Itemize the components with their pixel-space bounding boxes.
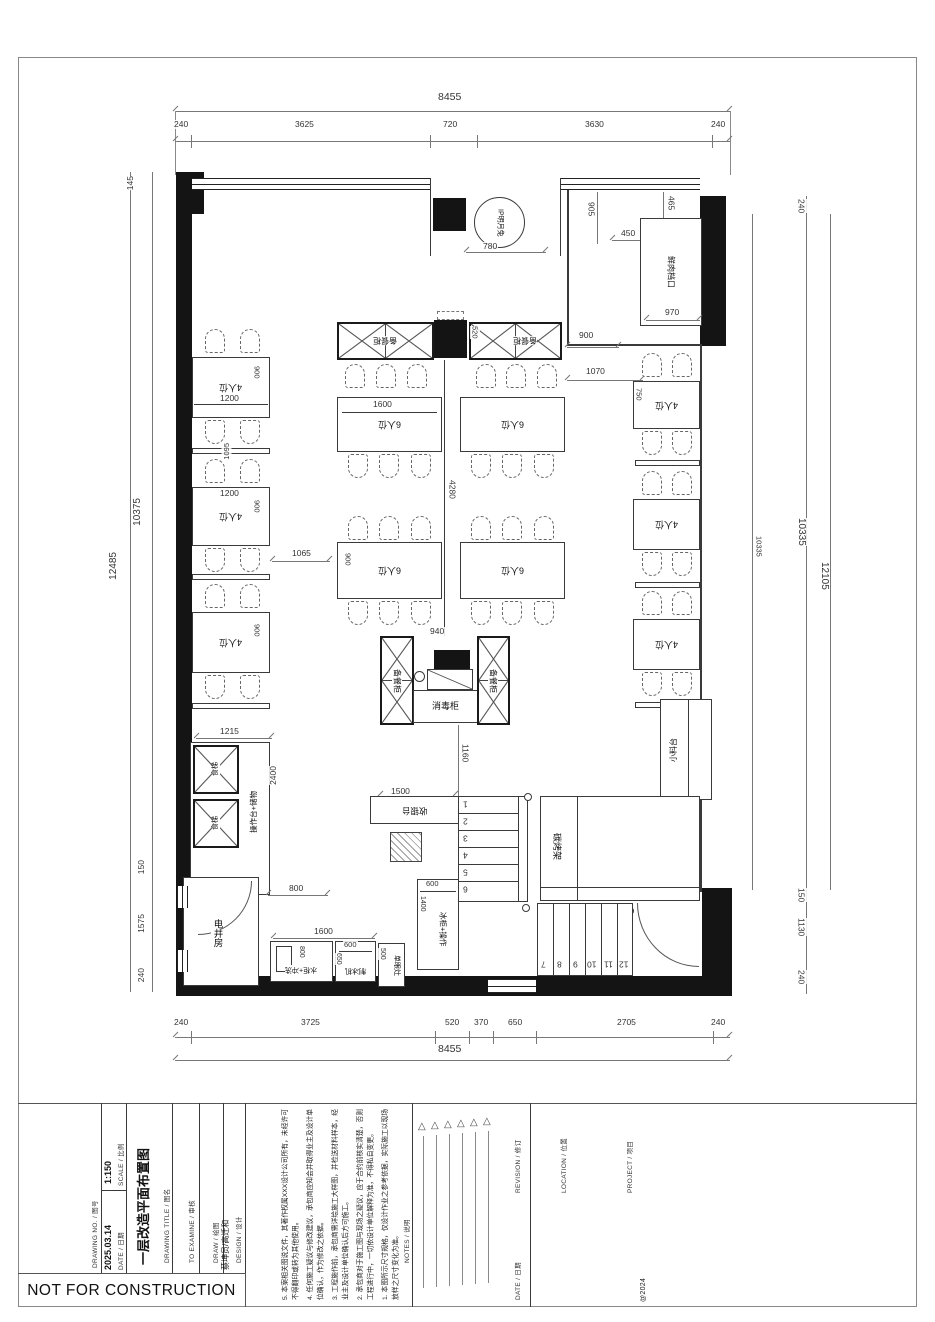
vestibule-wall [430, 178, 431, 256]
meat-room-wall [567, 344, 702, 346]
dim-line [567, 380, 643, 381]
chair-row [197, 582, 267, 610]
stair-number: 4 [462, 851, 469, 860]
dim-465: 465 [666, 196, 677, 210]
chair-row [637, 550, 697, 578]
stair-number: 10 [586, 960, 597, 969]
chair-icon [672, 552, 692, 576]
chair-row [465, 514, 560, 542]
dim-970: 970 [664, 308, 680, 317]
dim-left-1575: 1575 [136, 914, 147, 933]
cashier-desk: 收银台 [370, 796, 459, 824]
tick [713, 1031, 714, 1044]
revision-triangle-icon: △ [470, 1118, 478, 1128]
notes-label: NOTES / 说明 [401, 1108, 411, 1263]
tb-line [412, 1103, 413, 1307]
chair-icon [240, 584, 260, 608]
dim-1160: 1160 [460, 744, 471, 762]
chair-icon [407, 364, 427, 388]
prep-cabinet-label: 备餐柜 [488, 669, 497, 693]
chair-icon [471, 601, 491, 625]
chair-icon [502, 454, 522, 478]
dim-bottom-4: 650 [507, 1018, 523, 1027]
dim-line [196, 738, 272, 739]
chair-row [342, 599, 437, 627]
service-ledge [635, 582, 700, 588]
chair-icon [411, 601, 431, 625]
meat-room-wall [567, 190, 569, 346]
table-6p: 6人位 [460, 542, 565, 599]
revision-line [475, 1132, 476, 1284]
spice-station-label: 小料台 [669, 738, 678, 762]
dim-900: 900 [252, 366, 262, 379]
dim-top-3: 3630 [584, 120, 605, 129]
dim-right-150: 150 [796, 888, 807, 902]
stair-number: 11 [603, 960, 614, 969]
dim-4280: 4280 [447, 480, 458, 499]
tick [191, 135, 192, 148]
dim-600: 600 [343, 941, 358, 949]
dim-line [646, 320, 700, 321]
column [434, 320, 467, 358]
tick [712, 135, 713, 148]
ice-maker-label: 制冰机 [345, 966, 366, 974]
chair-icon [506, 364, 526, 388]
dim-line [597, 192, 598, 244]
dim-bottom-0: 240 [173, 1018, 189, 1027]
table-4p: 4人位 [192, 612, 270, 673]
dim-line [175, 141, 730, 142]
stair-tread [569, 903, 570, 976]
meat-counter-label: 鲜肉档口 [666, 256, 675, 288]
draw-label: DRAW / 绘图 [210, 1108, 220, 1263]
chair-icon [205, 329, 225, 353]
chair-icon [240, 420, 260, 444]
dim-left-145: 145 [125, 176, 136, 190]
chair-icon [205, 548, 225, 572]
stair-number: 12 [618, 960, 629, 969]
chair-icon [672, 591, 692, 615]
chair-icon [672, 353, 692, 377]
dim-1200: 1200 [219, 489, 240, 498]
tick [191, 1031, 192, 1044]
prep-cabinet-label: 备餐柜 [392, 669, 401, 693]
note-item: 3. 工程施作前，承包商需详绘施工大样图，并检送材料样本，经业主及设计单位确认后… [331, 1108, 352, 1300]
drawing-title-value: 一层改造平面布置图 [133, 1115, 152, 1265]
dim-line [175, 1037, 730, 1038]
chair-icon [379, 516, 399, 540]
column [433, 198, 466, 231]
dim-right-1130: 1130 [796, 918, 807, 936]
dim-line [420, 891, 456, 892]
single-stove-label: 单眼灶 [392, 955, 400, 976]
service-ledge [635, 460, 700, 466]
window-top-right [560, 178, 700, 190]
dim-line [152, 172, 153, 992]
dim-bottom-6: 240 [710, 1018, 726, 1027]
dim-450: 450 [620, 229, 636, 238]
dim-line [175, 111, 730, 112]
table-4p-label: 4人位 [655, 519, 678, 529]
design-value: 蔡坤员/高迁和 [220, 1155, 231, 1270]
revision-date-label: DATE / 日期 [512, 1240, 522, 1300]
dim-line [339, 951, 372, 952]
not-for-construction-stamp: NOT FOR CONSTRUCTION [18, 1273, 246, 1307]
dim-bottom-total: 8455 [437, 1044, 462, 1055]
grill-room-label: 碳烤架 [552, 833, 562, 860]
chair-icon [537, 364, 557, 388]
ip-mascot-label: IP明月兔 [495, 209, 503, 237]
chair-icon [476, 364, 496, 388]
note-item: 2. 承包商对于施工图与现场之疑议，应于合约前核实清楚，否则工程进行中，一切依设… [356, 1108, 377, 1300]
dim-line [130, 172, 131, 992]
cashier-label: 收银台 [402, 805, 428, 815]
dim-750: 750 [634, 388, 644, 401]
chair-icon [205, 420, 225, 444]
project-label: PROJECT / 项目 [624, 1108, 634, 1193]
dim-1500: 1500 [390, 787, 411, 796]
stair-number: 2 [462, 817, 469, 826]
dim-1215: 1215 [219, 727, 240, 736]
design-label: DESIGN / 设计 [233, 1108, 243, 1263]
chair-icon [642, 672, 662, 696]
chair-row [637, 351, 697, 379]
tb-line [101, 1103, 102, 1273]
window-top-left [192, 178, 430, 190]
service-ledge [192, 574, 270, 580]
tick [435, 1031, 436, 1044]
dim-line [567, 347, 619, 348]
spice-divider [688, 699, 689, 800]
chair-icon [411, 454, 431, 478]
revision-label: REVISION / 修订 [512, 1108, 522, 1193]
service-ledge [192, 703, 270, 709]
freezer-worktop-label: 冰柜+操作 [438, 912, 447, 946]
side-table [390, 832, 422, 862]
chair-icon [205, 584, 225, 608]
dim-10335-inner: 10335 [754, 536, 764, 557]
dim-left-150: 150 [136, 860, 147, 874]
chair-row [637, 429, 697, 457]
chair-icon [672, 672, 692, 696]
dim-top-1: 3625 [294, 120, 315, 129]
stair-number: 7 [540, 960, 547, 969]
dim-line [458, 725, 459, 797]
stair-tread [458, 881, 518, 882]
tb-line [172, 1103, 173, 1273]
stair-number: 5 [462, 868, 469, 877]
tb-line [530, 1103, 531, 1307]
stair-tread [458, 813, 518, 814]
dim-900: 900 [578, 331, 594, 340]
stair-tread [601, 903, 602, 976]
dim-top-2: 720 [442, 120, 458, 129]
dim-right-240b: 240 [796, 970, 807, 984]
dim-bottom-3: 370 [473, 1018, 489, 1027]
dim-1200: 1200 [219, 394, 240, 403]
tick [477, 135, 478, 148]
dim-line [830, 214, 831, 890]
revision-triangle-icon: △ [483, 1117, 491, 1127]
dim-line [268, 895, 328, 896]
chair-row [197, 418, 267, 446]
table-4p: 4人位 [633, 619, 700, 670]
chair-icon [502, 516, 522, 540]
table-4p-label: 4人位 [219, 637, 242, 647]
tick [430, 135, 431, 148]
chair-row [339, 362, 432, 390]
notes-block: 1. 本图所示尺寸规格，仅设计作业之参考依据，实际施工以现场放样之尺寸变化为准。… [250, 1108, 402, 1302]
dim-1600: 1600 [313, 927, 334, 936]
wall-hatch [177, 886, 188, 908]
revision-line [449, 1134, 450, 1286]
grill-divider [577, 796, 578, 901]
stair-number: 9 [572, 960, 579, 969]
chair-row [465, 452, 560, 480]
project-image-placeholder [636, 1105, 915, 1305]
tray-rack [427, 669, 473, 690]
to-examine-label: TO EXAMINE / 审核 [186, 1108, 196, 1263]
revision-line [423, 1136, 424, 1288]
revision-triangle-icon: △ [418, 1122, 426, 1132]
sink-station-label: 水柜+冲洗 [285, 965, 317, 973]
dim-bottom-5: 2705 [616, 1018, 637, 1027]
date-value: 2025.03.14 [103, 1198, 113, 1270]
revision-line [436, 1135, 437, 1287]
chair-row [637, 589, 697, 617]
column-dashed-cap [437, 311, 464, 320]
chair-icon [642, 552, 662, 576]
tick [469, 1031, 470, 1044]
chair-icon [348, 516, 368, 540]
table-4p-label: 4人位 [219, 382, 242, 392]
dim-bottom-1: 3725 [300, 1018, 321, 1027]
stool [414, 671, 425, 682]
drawing-title-label: DRAWING TITLE / 图名 [161, 1108, 171, 1263]
chair-row [197, 457, 267, 485]
table-6p: 6人位 [460, 397, 565, 452]
dim-line [273, 938, 375, 939]
revision-line [462, 1133, 463, 1285]
table-4p-label: 4人位 [219, 511, 242, 521]
chair-icon [642, 353, 662, 377]
food-lift-label: 食梯 [212, 762, 220, 776]
dim-top-0: 240 [173, 120, 189, 129]
dim-1600: 1600 [372, 400, 393, 409]
stair-stringer [518, 796, 519, 902]
dim-right-10335: 10335 [795, 518, 807, 546]
revision-triangle-icon: △ [444, 1120, 452, 1130]
prep-cabinet-label: 备餐柜 [373, 336, 397, 345]
dim-2400: 2400 [268, 766, 279, 785]
ip-mascot: IP明月兔 [474, 197, 525, 248]
stair-tread [458, 864, 518, 865]
tb-line [101, 1190, 126, 1191]
location-label: LOCATION / 位置 [558, 1108, 568, 1193]
window-bottom [488, 979, 536, 993]
chair-icon [502, 601, 522, 625]
chair-icon [240, 675, 260, 699]
sterilizer-label: 消毒柜 [432, 701, 459, 711]
newel-post [522, 904, 530, 912]
table-6p-label: 6人位 [501, 565, 524, 575]
drawing-sheet: IP明月兔 780 905 465 450 鲜肉档口 970 900 1070 … [0, 0, 935, 1322]
dim-1065: 1065 [291, 549, 312, 558]
dim-520: 520 [470, 326, 480, 339]
note-item: 5. 本案相关图说文件，其著作权属XXX设计公司所有，未经许可不得翻印或转为其他… [281, 1108, 302, 1300]
drawing-no-label: DRAWING NO. / 图号 [89, 1118, 99, 1268]
scale-value: 1:150 [103, 1120, 113, 1184]
revision-line [488, 1131, 489, 1283]
table-6p-label: 6人位 [501, 419, 524, 429]
chair-icon [348, 454, 368, 478]
chair-row [342, 452, 437, 480]
dim-940: 940 [429, 627, 445, 636]
chair-icon [471, 516, 491, 540]
tick [536, 1031, 537, 1044]
note-item: 4. 任何施工疑议与修改建议，承包商应知会并取得业主及设计单位确认，作为修改之依… [306, 1108, 327, 1300]
copyright-text: @2024 [640, 1262, 647, 1302]
dim-line [194, 404, 268, 405]
stair-number: 8 [556, 960, 563, 969]
scale-label: SCALE / 比例 [115, 1108, 125, 1186]
wall-right [700, 346, 702, 892]
dim-right-12105: 12105 [818, 562, 830, 590]
stair-number: 6 [462, 885, 469, 894]
chair-row [197, 546, 267, 574]
chair-icon [348, 601, 368, 625]
dim-top-total: 8455 [437, 92, 462, 103]
bowl-column [0, 0, 18, 93]
chair-icon [672, 471, 692, 495]
table-4p-label: 4人位 [655, 400, 678, 410]
dim-line [272, 561, 330, 562]
chair-icon [642, 431, 662, 455]
tb-line [126, 1103, 127, 1273]
chair-icon [205, 675, 225, 699]
chair-icon [642, 471, 662, 495]
chair-row [465, 599, 560, 627]
dim-left-12485: 12485 [108, 552, 120, 580]
revision-triangle-icon: △ [457, 1119, 465, 1129]
stamp-text: NOT FOR CONSTRUCTION [27, 1282, 236, 1300]
chair-icon [534, 601, 554, 625]
dim-left-240: 240 [136, 968, 147, 982]
chair-icon [471, 454, 491, 478]
chair-row [637, 670, 697, 698]
dim-top-4: 240 [710, 120, 726, 129]
vestibule-wall [560, 178, 561, 256]
aisle-line [444, 360, 445, 636]
dim-line [466, 252, 546, 253]
chair-icon [205, 459, 225, 483]
chair-icon [376, 364, 396, 388]
dim-780: 780 [482, 242, 498, 251]
chair-icon [240, 548, 260, 572]
revision-triangle-icon: △ [431, 1121, 439, 1131]
chair-icon [411, 516, 431, 540]
chair-row [342, 514, 437, 542]
dim-900: 900 [252, 500, 262, 513]
dim-800: 800 [297, 946, 306, 958]
stair-number: 3 [462, 834, 469, 843]
chair-row [197, 327, 267, 355]
dim-1400: 1400 [418, 896, 427, 912]
chair-icon [345, 364, 365, 388]
table-6p-label: 6人位 [378, 565, 401, 575]
dim-right-240: 240 [796, 199, 807, 213]
dim-left-10375: 10375 [132, 498, 144, 526]
tick [493, 1031, 494, 1044]
wall-bottom [176, 976, 732, 996]
dim-1070: 1070 [585, 367, 606, 376]
chair-icon [534, 516, 554, 540]
stair-tread [553, 903, 554, 976]
stair-tread [458, 830, 518, 831]
prep-cabinet-label: 备餐柜 [513, 336, 537, 345]
worktop-label: 操作台+储物 [250, 791, 259, 833]
dim-600: 600 [425, 880, 440, 888]
chair-icon [379, 601, 399, 625]
dim-line [752, 214, 753, 890]
chair-row [471, 362, 562, 390]
dim-900: 900 [343, 553, 353, 566]
chair-icon [379, 454, 399, 478]
shaft-room-label: 电井房 [211, 919, 222, 948]
grill-ledge [540, 887, 700, 888]
ext-line [730, 111, 731, 175]
stair-tread [458, 847, 518, 848]
table-4p-label: 4人位 [655, 639, 678, 649]
tb-line [199, 1103, 200, 1273]
sterilizer-cabinet: 消毒柜 [413, 690, 478, 723]
dim-500: 500 [378, 948, 387, 960]
chair-icon [672, 431, 692, 455]
dim-bottom-2: 520 [444, 1018, 460, 1027]
dim-900: 900 [252, 624, 262, 637]
wall-right-upper [700, 196, 726, 346]
chair-row [197, 673, 267, 701]
table-6p: 6人位 [337, 542, 442, 599]
table-6p-label: 6人位 [378, 419, 401, 429]
dim-line [342, 412, 437, 413]
dim-line [175, 1060, 730, 1061]
dim-line [806, 196, 807, 994]
dim-800: 800 [288, 884, 304, 893]
chair-icon [534, 454, 554, 478]
chair-icon [240, 329, 260, 353]
chair-icon [642, 591, 662, 615]
newel-post [524, 793, 532, 801]
date-label: DATE / 日期 [115, 1194, 125, 1270]
table-4p: 4人位 [633, 499, 700, 550]
dim-905: 905 [586, 202, 597, 216]
food-lift-label: 食梯 [212, 816, 220, 830]
wall-hatch [177, 950, 188, 972]
chair-icon [240, 459, 260, 483]
note-item: 1. 本图所示尺寸规格，仅设计作业之参考依据，实际施工以现场放样之尺寸变化为准。 [381, 1108, 402, 1300]
chair-row [637, 469, 697, 497]
stair-number: 1 [462, 800, 469, 809]
